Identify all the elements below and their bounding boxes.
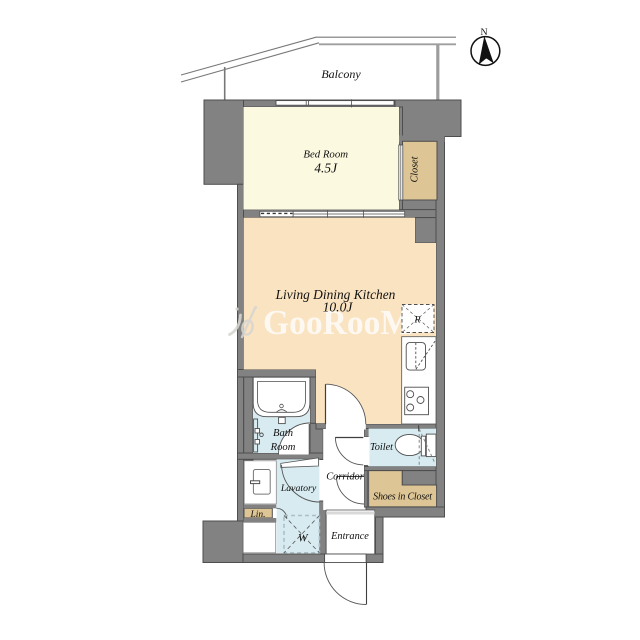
svg-text:Corridor: Corridor (326, 472, 364, 483)
svg-text:R: R (414, 315, 421, 326)
svg-text:Bath: Bath (273, 428, 293, 439)
svg-text:Balcony: Balcony (321, 67, 361, 81)
svg-text:Lin.: Lin. (249, 510, 265, 520)
svg-text:W: W (298, 533, 309, 545)
svg-text:Closet: Closet (410, 155, 421, 182)
svg-text:4.5J: 4.5J (314, 160, 338, 175)
svg-text:N: N (480, 27, 487, 38)
svg-text:Entrance: Entrance (330, 531, 369, 542)
svg-text:Shoes in Closet: Shoes in Closet (373, 492, 432, 503)
svg-text:Bed Room: Bed Room (303, 149, 348, 161)
svg-text:10.0J: 10.0J (323, 300, 354, 315)
svg-text:Room: Room (270, 442, 296, 453)
svg-text:Lavatory: Lavatory (280, 483, 317, 494)
svg-text:Toilet: Toilet (370, 442, 394, 453)
